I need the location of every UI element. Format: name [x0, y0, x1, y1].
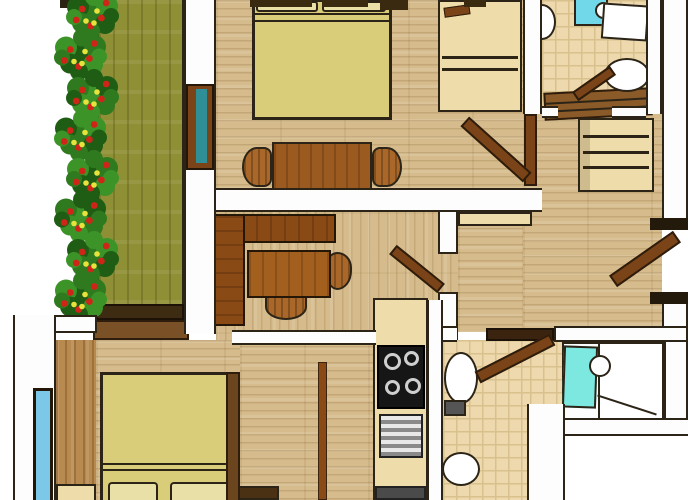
wall-nook-top — [554, 326, 688, 342]
counter-base — [375, 486, 426, 500]
wall-nook-bottom — [554, 418, 688, 436]
wall-shelf — [93, 320, 189, 340]
dining-chair-left — [242, 147, 272, 187]
wardrobe-shelf-line — [442, 68, 518, 71]
wall-lower-bathroom-top — [443, 326, 457, 342]
nook-counter — [598, 342, 664, 422]
duvet-fold-line — [101, 463, 239, 471]
wall-studio-office — [216, 188, 542, 212]
round-basin — [589, 355, 611, 377]
bedroom-window — [33, 388, 53, 500]
burner — [384, 353, 401, 370]
burner — [385, 380, 400, 395]
hallway-lower-floor — [458, 212, 523, 332]
chest-of-drawers — [578, 118, 654, 192]
hall-ledge — [458, 212, 532, 226]
pillow — [170, 482, 232, 500]
entry-door-frame-stub — [650, 292, 688, 304]
drawer-line — [583, 166, 649, 169]
wall-office-hall-upper — [438, 212, 458, 254]
wall-top-bathroom-bottom-a — [542, 106, 558, 118]
dishwasher — [379, 414, 423, 458]
support-column — [318, 362, 327, 500]
bidet — [442, 452, 480, 486]
toilet-bowl — [444, 352, 478, 404]
balcony-window — [186, 84, 214, 170]
double-bed-top — [252, 0, 392, 120]
vanity-counter-top — [601, 2, 649, 41]
burner — [405, 378, 421, 394]
wall-studio-hall — [523, 0, 542, 114]
dining-table — [272, 142, 372, 192]
l-desk-left — [212, 214, 245, 326]
wall-right-exterior-upper — [662, 0, 688, 220]
bench-plank-line — [546, 97, 650, 104]
duvet-fold-line — [253, 13, 391, 22]
wall-top-bathroom-bottom-b — [612, 106, 646, 118]
wall-kitchen-bathroom — [427, 300, 443, 500]
entry-door-frame-stub — [650, 218, 688, 230]
bed-side-rail — [226, 372, 240, 500]
wardrobe-shelf-line — [442, 56, 518, 59]
top-wall-stub — [464, 0, 486, 7]
balcony-window-glass — [196, 89, 207, 163]
nightstand — [56, 484, 96, 500]
wall-office-kitchen — [232, 330, 376, 345]
top-wall-stub — [380, 0, 408, 10]
drawer-line — [583, 151, 649, 154]
drawer-shadow — [580, 120, 590, 190]
nook-glass-panel — [562, 345, 598, 408]
floor-plan-canvas — [0, 0, 700, 500]
cooktop — [377, 345, 425, 409]
dining-chair-right — [372, 147, 402, 187]
wardrobe — [438, 0, 522, 112]
wall-bathroom-step — [527, 404, 565, 500]
drawer-line — [583, 135, 649, 138]
burner — [404, 351, 419, 366]
wall-top-bathroom-right — [646, 0, 662, 114]
flowering-hedge — [36, 0, 136, 328]
pillow — [108, 482, 158, 500]
inner-desk — [247, 250, 331, 298]
toilet-tank — [444, 400, 466, 416]
counter-corner-line — [597, 394, 657, 415]
double-bed-bottom — [100, 372, 240, 500]
top-wall-stub — [322, 0, 368, 7]
top-wall-stub — [250, 0, 312, 7]
